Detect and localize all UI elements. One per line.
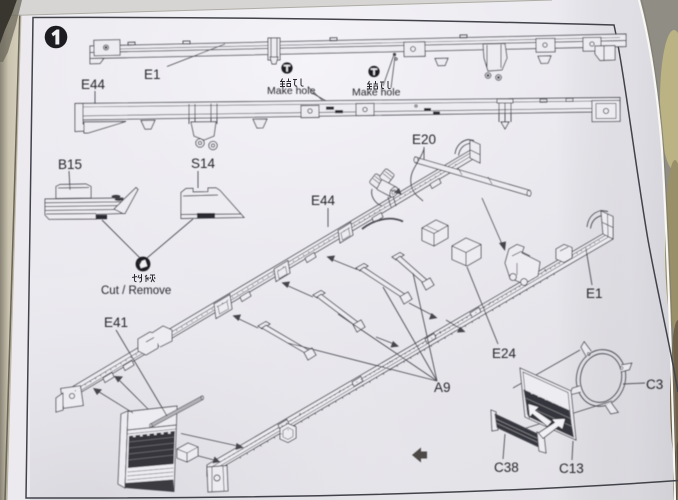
svg-text:C38: C38 <box>494 460 519 475</box>
svg-text:E1: E1 <box>586 286 603 301</box>
svg-text:C13: C13 <box>559 461 584 476</box>
svg-text:E1: E1 <box>144 67 161 82</box>
svg-text:E20: E20 <box>412 132 436 147</box>
svg-text:E44: E44 <box>81 77 106 92</box>
svg-text:Cut / Remove: Cut / Remove <box>101 285 171 297</box>
svg-text:C3: C3 <box>646 377 663 392</box>
svg-text:E24: E24 <box>492 346 517 361</box>
svg-text:S14: S14 <box>191 156 216 171</box>
svg-text:A9: A9 <box>434 380 451 395</box>
svg-text:E41: E41 <box>104 315 128 330</box>
svg-text:Make hole: Make hole <box>352 87 401 99</box>
svg-text:Make hole: Make hole <box>267 85 316 97</box>
svg-text:B15: B15 <box>58 157 82 172</box>
svg-text:E44: E44 <box>311 193 336 208</box>
